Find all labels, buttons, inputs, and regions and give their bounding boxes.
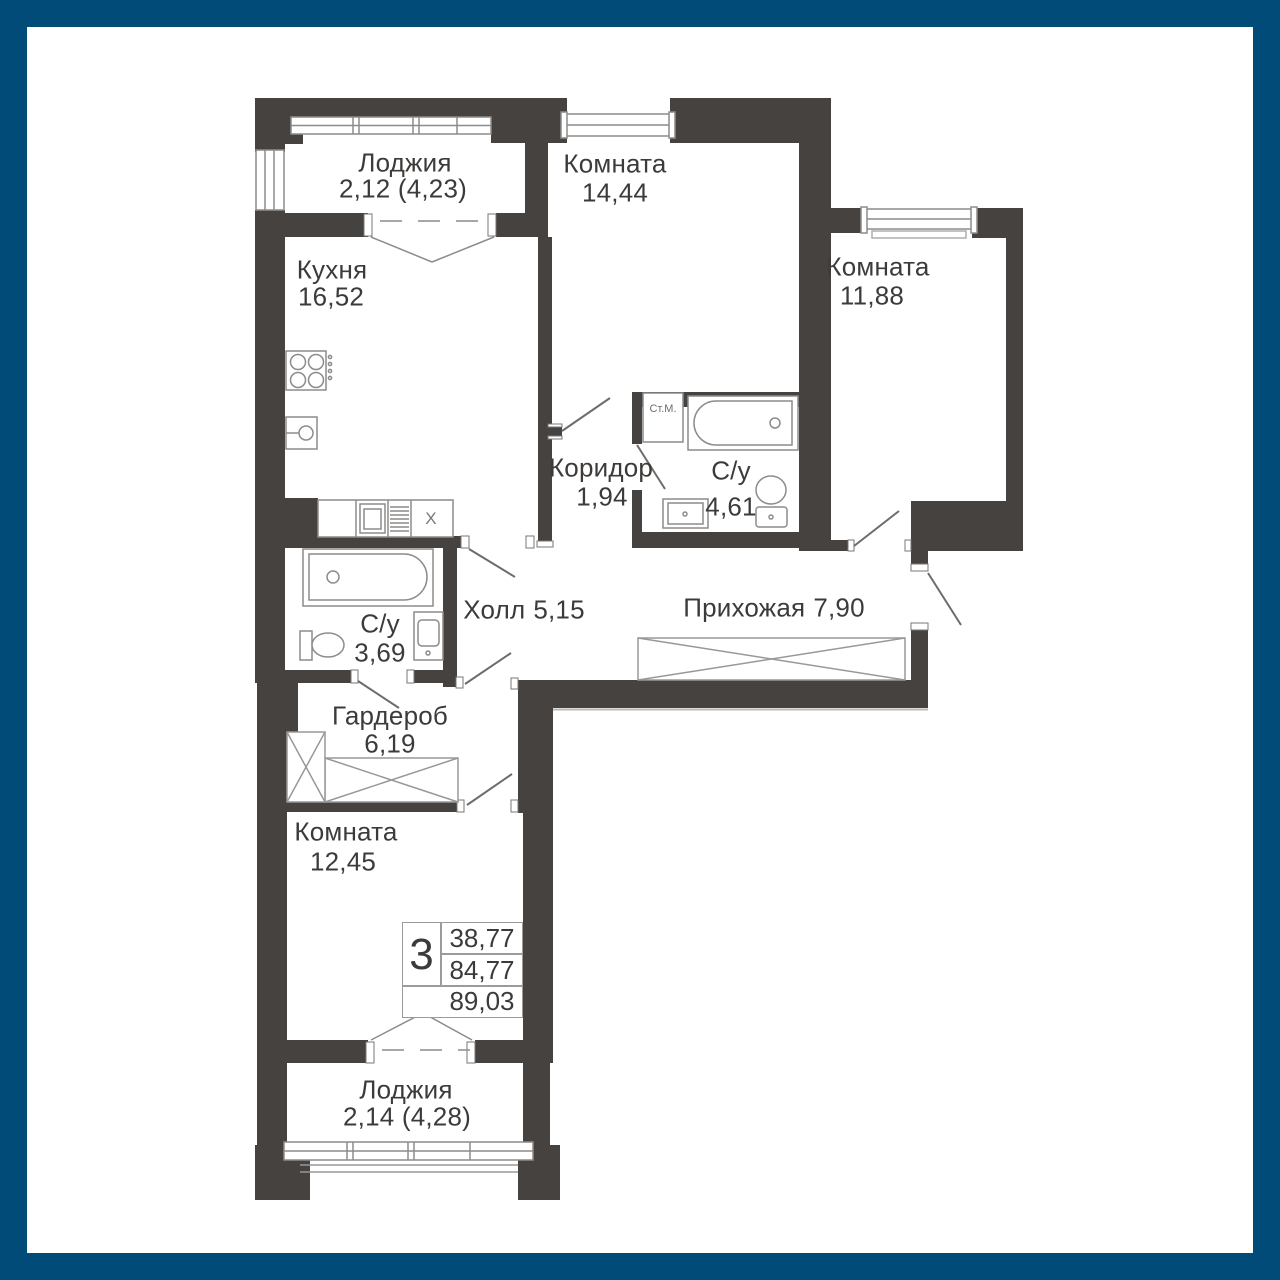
apartment-info-table: 3 38,77 84,77 89,03 bbox=[402, 922, 523, 1018]
info-total-area: 89,03 bbox=[440, 986, 524, 1017]
label-room-top-name: Комната bbox=[563, 149, 666, 180]
bathtub-small-icon bbox=[303, 549, 433, 606]
bathtub-main-icon bbox=[688, 396, 798, 450]
door-room-top bbox=[562, 398, 610, 431]
toilet-main-icon bbox=[756, 476, 787, 527]
label-hall-area: 5,15 bbox=[533, 595, 584, 625]
floor-plan-canvas: Лоджия 2,12 (4,23) Кухня 16,52 Комната 1… bbox=[0, 0, 1280, 1280]
door-kitchen bbox=[469, 549, 515, 577]
balcony-slab-lines bbox=[300, 1165, 518, 1172]
window-loggia-left-icon bbox=[256, 150, 284, 210]
window-loggia-bottom-icon bbox=[284, 1142, 533, 1160]
label-wardrobe-name: Гардероб bbox=[332, 701, 448, 732]
washing-machine-icon bbox=[643, 393, 683, 442]
label-entry: Прихожая7,90 bbox=[679, 593, 869, 624]
sink-main-icon bbox=[663, 499, 708, 528]
info-living-area: 38,77 bbox=[440, 923, 524, 954]
entry-closet-icon bbox=[638, 638, 905, 680]
label-bathroom-main-name: С/у bbox=[711, 456, 751, 487]
info-apartment-area: 84,77 bbox=[440, 954, 524, 986]
label-room-right-name: Комната bbox=[826, 252, 929, 283]
sink-small-icon bbox=[414, 612, 443, 660]
wardrobe-side-closet-icon bbox=[287, 732, 325, 802]
label-washing-machine: Ст.М. bbox=[649, 403, 676, 415]
label-room-right-area: 11,88 bbox=[840, 281, 904, 312]
door-wardrobe bbox=[465, 653, 511, 684]
label-entry-area: 7,90 bbox=[813, 593, 864, 623]
label-bathroom-small-area: 3,69 bbox=[354, 638, 405, 669]
door-entrance bbox=[928, 573, 961, 625]
label-loggia-bottom-area: 2,14 (4,28) bbox=[343, 1102, 471, 1133]
label-kitchen-area: 16,52 bbox=[298, 282, 364, 313]
label-wardrobe-area: 6,19 bbox=[364, 729, 415, 760]
stove-icon bbox=[286, 351, 332, 390]
label-entry-name: Прихожая bbox=[683, 593, 805, 623]
label-corridor-area: 1,94 bbox=[576, 482, 627, 513]
dishwasher-stripes bbox=[390, 507, 409, 531]
window-room-right-icon bbox=[861, 207, 977, 238]
door-room-right bbox=[854, 511, 899, 546]
window-loggia-top-icon bbox=[291, 117, 491, 134]
kitchen-cabinet-icon bbox=[286, 417, 317, 449]
toilet-small-icon bbox=[300, 631, 344, 660]
label-corridor-name: Коридор bbox=[549, 453, 653, 484]
label-kitchen-x: X bbox=[425, 509, 437, 529]
label-hall: Холл5,15 bbox=[459, 595, 589, 626]
window-room-top-icon bbox=[561, 112, 675, 138]
label-loggia-top-area: 2,12 (4,23) bbox=[339, 174, 467, 205]
label-room-bottom-area: 12,45 bbox=[310, 847, 376, 878]
label-room-top-area: 14,44 bbox=[582, 178, 648, 209]
label-room-bottom-name: Комната bbox=[294, 817, 397, 848]
wardrobe-closet-icon bbox=[325, 758, 458, 802]
label-bathroom-main-area: 4,61 bbox=[705, 492, 756, 523]
info-rooms-count: 3 bbox=[403, 923, 440, 986]
label-bathroom-small-name: С/у bbox=[360, 609, 400, 640]
door-room-bottom bbox=[467, 774, 512, 805]
label-hall-name: Холл bbox=[463, 595, 525, 625]
